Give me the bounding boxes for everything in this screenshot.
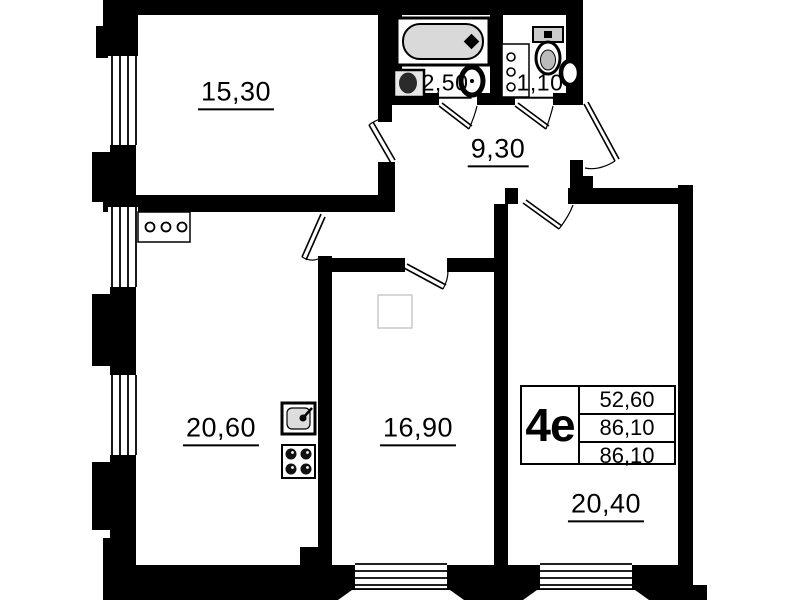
- area-label-room-right: 20,40: [568, 489, 644, 522]
- area-label-kitchen-living: 20,60: [183, 413, 259, 446]
- area-value-total-with-balcony: 86,10: [580, 443, 674, 469]
- kitchen-sink-icon: [282, 403, 315, 434]
- door-entrance: [584, 102, 619, 169]
- area-label-wc: 1,10: [514, 71, 567, 99]
- window-left-1: [108, 56, 138, 145]
- area-label-room-middle: 16,90: [380, 413, 456, 446]
- floor-plan-drawing: [0, 0, 799, 600]
- window-bottom-2: [523, 562, 649, 600]
- window-left-3: [108, 375, 138, 455]
- toilet-icon: [533, 27, 563, 74]
- apartment-info-table: 4е 52,60 86,10 86,10: [520, 385, 676, 465]
- area-label-room-top-left: 15,30: [198, 77, 274, 110]
- door-room-top-left: [369, 117, 395, 163]
- window-bottom-1: [338, 562, 464, 600]
- door-wc: [515, 103, 553, 129]
- apartment-type-label: 4е: [522, 387, 580, 463]
- floor-plan: 15,30 2,50 1,10 9,30 20,60 16,90 20,40 4…: [0, 0, 799, 600]
- door-bathroom: [439, 103, 477, 129]
- area-label-hallway: 9,30: [468, 134, 529, 167]
- vent-panel-icon: [138, 212, 190, 242]
- area-value-total: 86,10: [580, 415, 674, 443]
- area-values: 52,60 86,10 86,10: [580, 387, 674, 463]
- stove-icon: [282, 445, 315, 478]
- ghost-cabinet-outline: [378, 295, 412, 328]
- area-label-bathroom: 2,50: [419, 71, 472, 99]
- door-kitchen-living: [302, 214, 325, 260]
- door-room-right: [523, 200, 573, 229]
- bathtub-icon: [397, 18, 489, 65]
- window-left-2: [108, 207, 138, 287]
- door-room-middle: [404, 264, 448, 289]
- area-value-living: 52,60: [580, 387, 674, 415]
